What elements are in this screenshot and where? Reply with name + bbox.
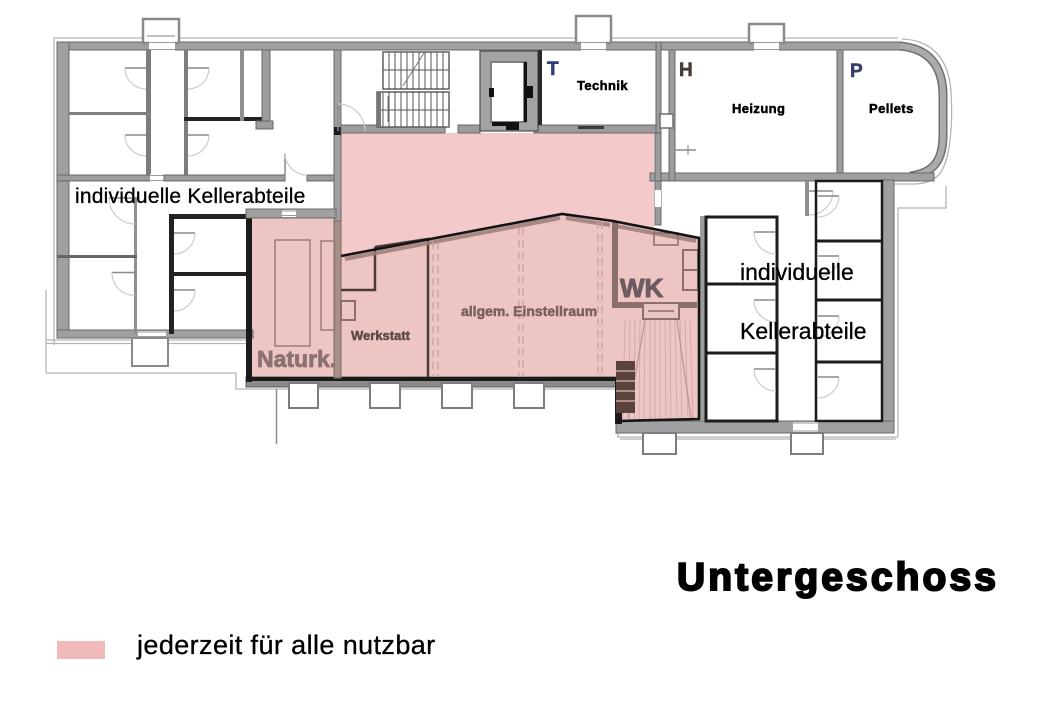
svg-text:WK: WK [620, 273, 664, 303]
svg-text:Naturk.: Naturk. [257, 346, 336, 372]
svg-text:Untergeschoss: Untergeschoss [677, 556, 999, 599]
svg-text:T: T [547, 59, 559, 80]
svg-text:allgem. Einstellraum: allgem. Einstellraum [461, 303, 597, 319]
svg-text:Technik: Technik [577, 78, 628, 93]
svg-text:individuelle Kellerabteile: individuelle Kellerabteile [75, 185, 306, 208]
svg-text:P: P [850, 61, 863, 82]
svg-text:jederzeit für alle nutzbar: jederzeit für alle nutzbar [136, 630, 436, 660]
svg-text:Pellets: Pellets [869, 101, 914, 116]
svg-text:Werkstatt: Werkstatt [351, 328, 411, 343]
svg-text:Heizung: Heizung [732, 101, 785, 116]
svg-text:individuelle: individuelle [740, 259, 854, 285]
svg-text:Kellerabteile: Kellerabteile [740, 318, 867, 344]
svg-text:H: H [679, 60, 693, 81]
